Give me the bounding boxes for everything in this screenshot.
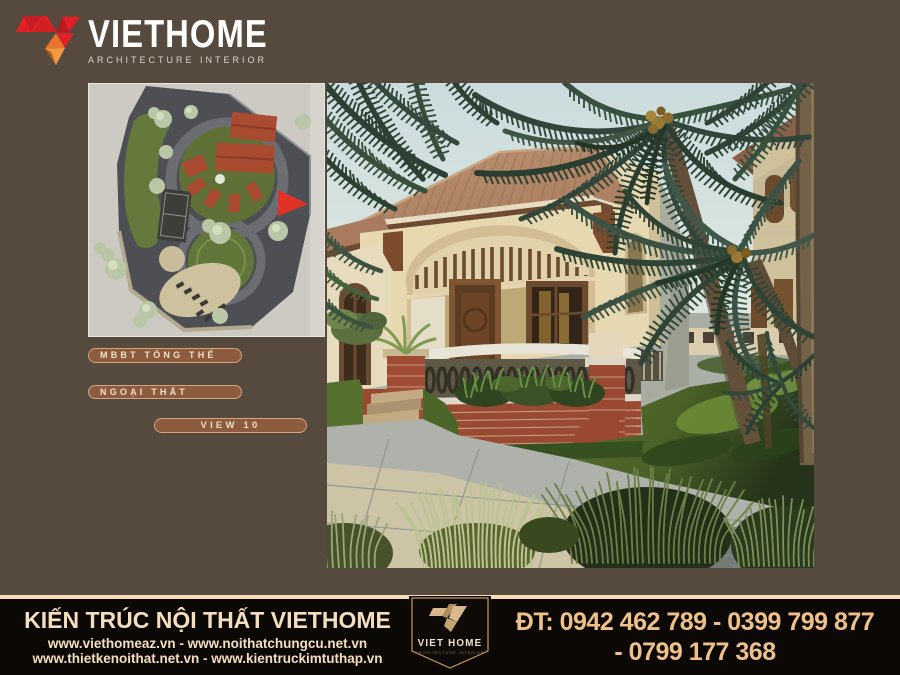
svg-text:ARCHITECTURE INTERIOR: ARCHITECTURE INTERIOR (415, 651, 484, 655)
svg-text:VIET HOME: VIET HOME (418, 638, 483, 649)
